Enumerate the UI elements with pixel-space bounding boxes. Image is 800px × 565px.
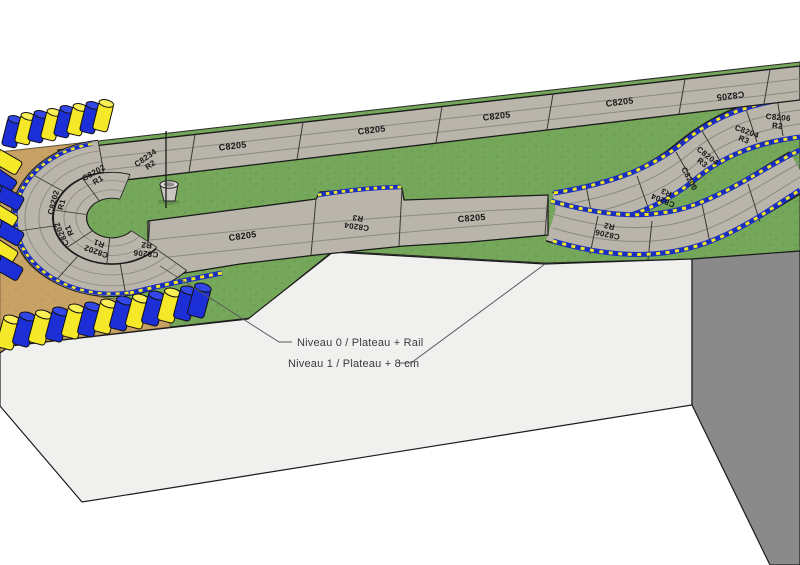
track-piece-radius: R2 (140, 240, 152, 250)
model-viewport[interactable]: C8205 C8205 C8205 C8205 C8205 C8206R2 C8… (0, 0, 800, 565)
annotation-level0-text: Niveau 0 / Plateau + Rail (297, 337, 423, 349)
track-piece-radius: R2 (772, 121, 784, 131)
annotation-level1-text: Niveau 1 / Plateau + 8 cm (288, 358, 419, 370)
track-piece-radius: R3 (352, 213, 364, 223)
screenshot-root: C8205 C8205 C8205 C8205 C8205 C8206R2 C8… (0, 0, 800, 565)
